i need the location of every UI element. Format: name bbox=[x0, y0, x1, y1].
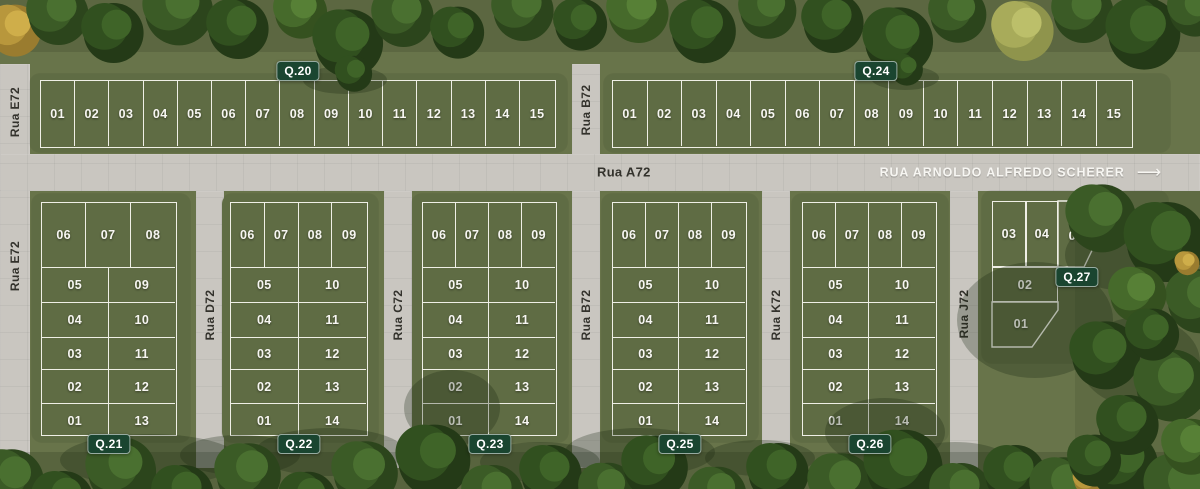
block-badge: Q.22 bbox=[277, 434, 320, 454]
block-badge: Q.20 bbox=[276, 61, 319, 81]
block-badge: Q.23 bbox=[468, 434, 511, 454]
block-badge: Q.21 bbox=[87, 434, 130, 454]
block-badge: Q.27 bbox=[1055, 267, 1098, 287]
badges-layer: Q.20Q.24Q.21Q.22Q.23Q.25Q.26Q.27 bbox=[0, 0, 1200, 489]
block-badge: Q.25 bbox=[658, 434, 701, 454]
masterplan-map: Rua E72Rua E72Rua B72Rua D72Rua C72Rua B… bbox=[0, 0, 1200, 489]
block-badge: Q.24 bbox=[854, 61, 897, 81]
block-badge: Q.26 bbox=[848, 434, 891, 454]
